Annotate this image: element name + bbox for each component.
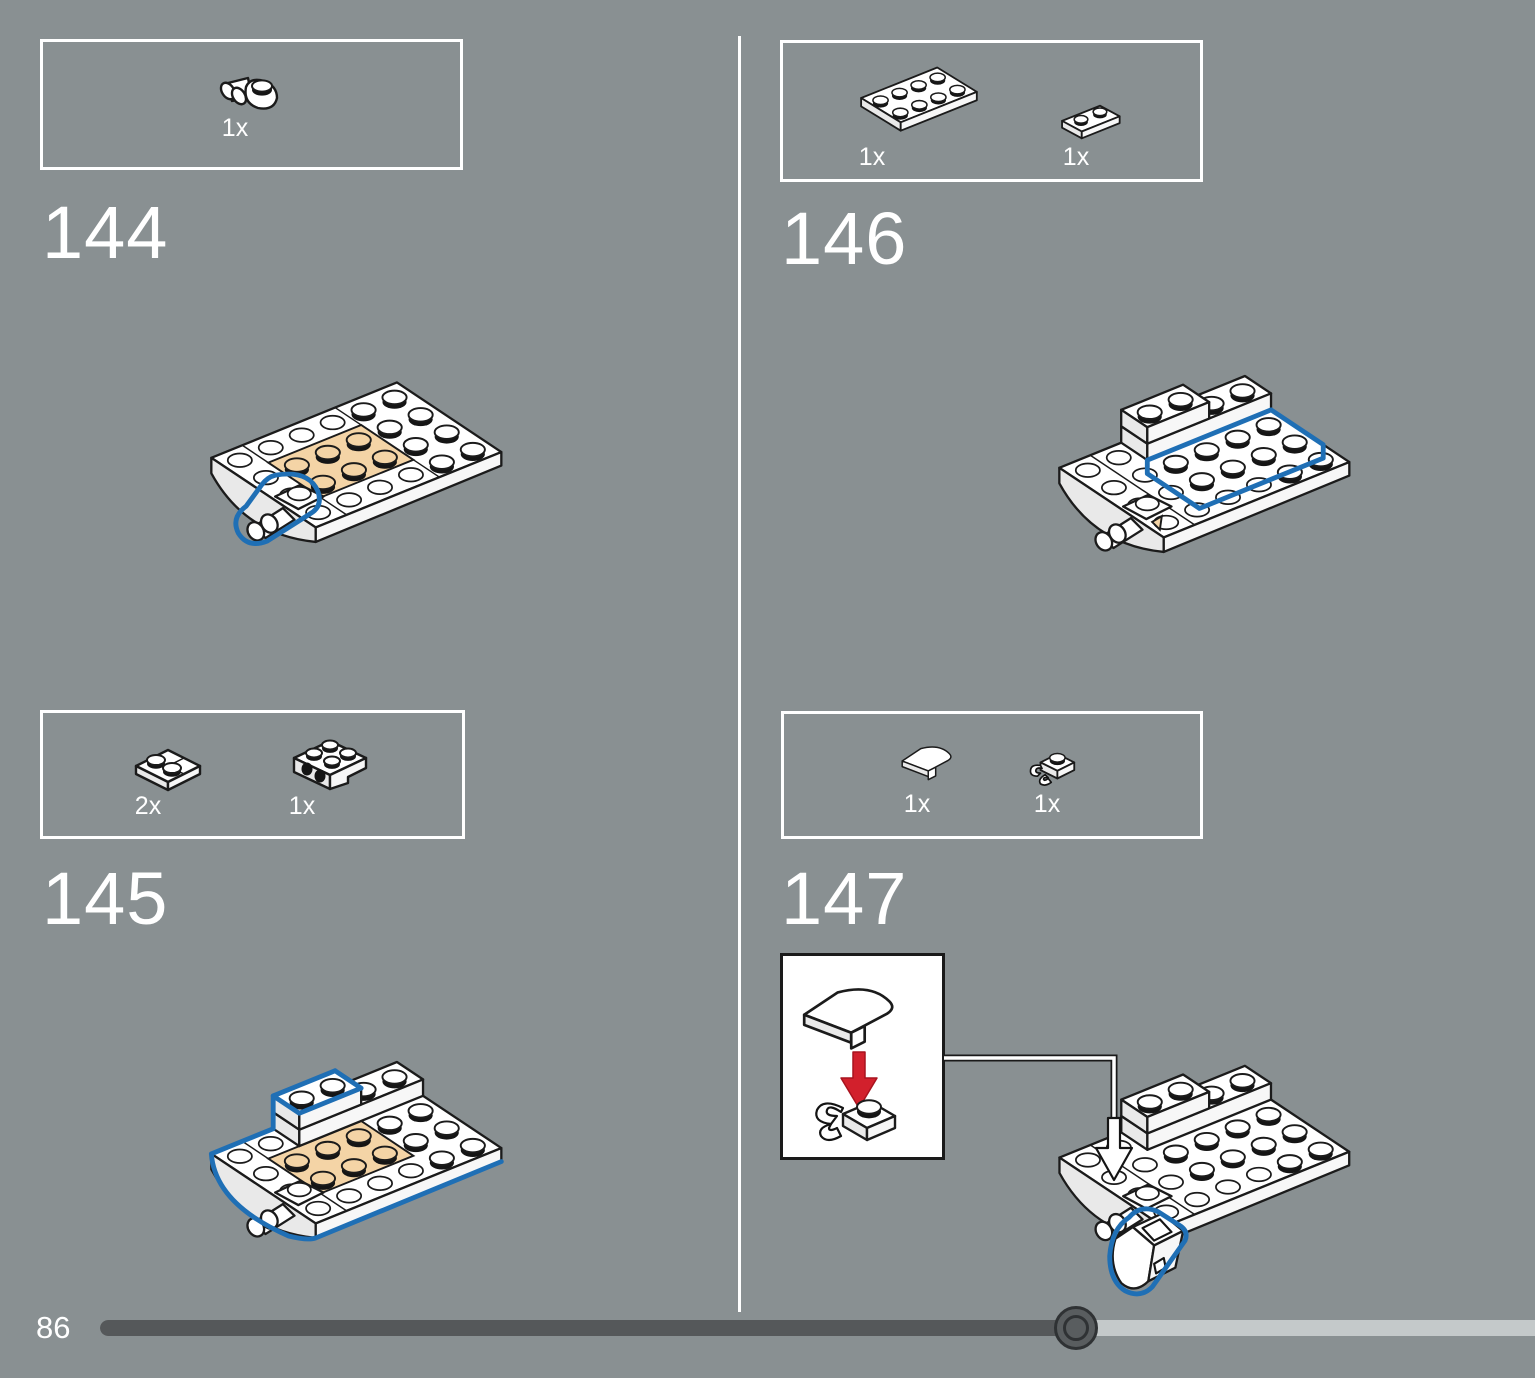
step-145-parts-box <box>40 710 465 839</box>
page-number: 86 <box>36 1310 70 1346</box>
detail-callout-connector <box>944 1048 1144 1228</box>
step-145-assembly-image <box>192 1028 540 1270</box>
step-147-detail-inset <box>780 953 945 1160</box>
part-count-label: 1x <box>205 115 265 143</box>
detail-inset-image <box>783 956 943 1158</box>
progress-handle-ring <box>1063 1315 1089 1341</box>
progress-handle[interactable] <box>1054 1306 1098 1350</box>
part-plate-2x4-image <box>852 60 989 139</box>
column-divider <box>738 36 741 1312</box>
part-plate-2x2-corner-image <box>126 730 210 792</box>
step-number-146: 146 <box>781 202 907 276</box>
part-count-label: 1x <box>1017 791 1077 819</box>
part-count-label: 1x <box>842 144 902 172</box>
step-146-assembly-image <box>1040 342 1388 584</box>
step-number-145: 145 <box>42 862 168 936</box>
part-plate-1x2-image <box>1056 98 1128 143</box>
lego-instructions-page: 1x 144 2x 1x 145 <box>0 0 1535 1378</box>
step-number-144: 144 <box>42 196 168 270</box>
part-bracket-2x2-image <box>286 732 372 792</box>
part-count-label: 2x <box>118 793 178 821</box>
part-slope-curved-image <box>896 736 958 783</box>
part-plate-1x1-clip-image <box>218 70 284 120</box>
part-plate-1x1-clip-image <box>1028 744 1086 790</box>
clip-part-detail <box>816 1100 895 1140</box>
step-147-parts-box <box>781 711 1203 839</box>
progress-fill <box>100 1320 1076 1336</box>
part-count-label: 1x <box>272 793 332 821</box>
step-number-147: 147 <box>781 862 907 936</box>
part-count-label: 1x <box>1046 144 1106 172</box>
step-144-assembly-image <box>192 332 540 574</box>
placement-arrow <box>1096 1118 1132 1180</box>
part-count-label: 1x <box>887 791 947 819</box>
